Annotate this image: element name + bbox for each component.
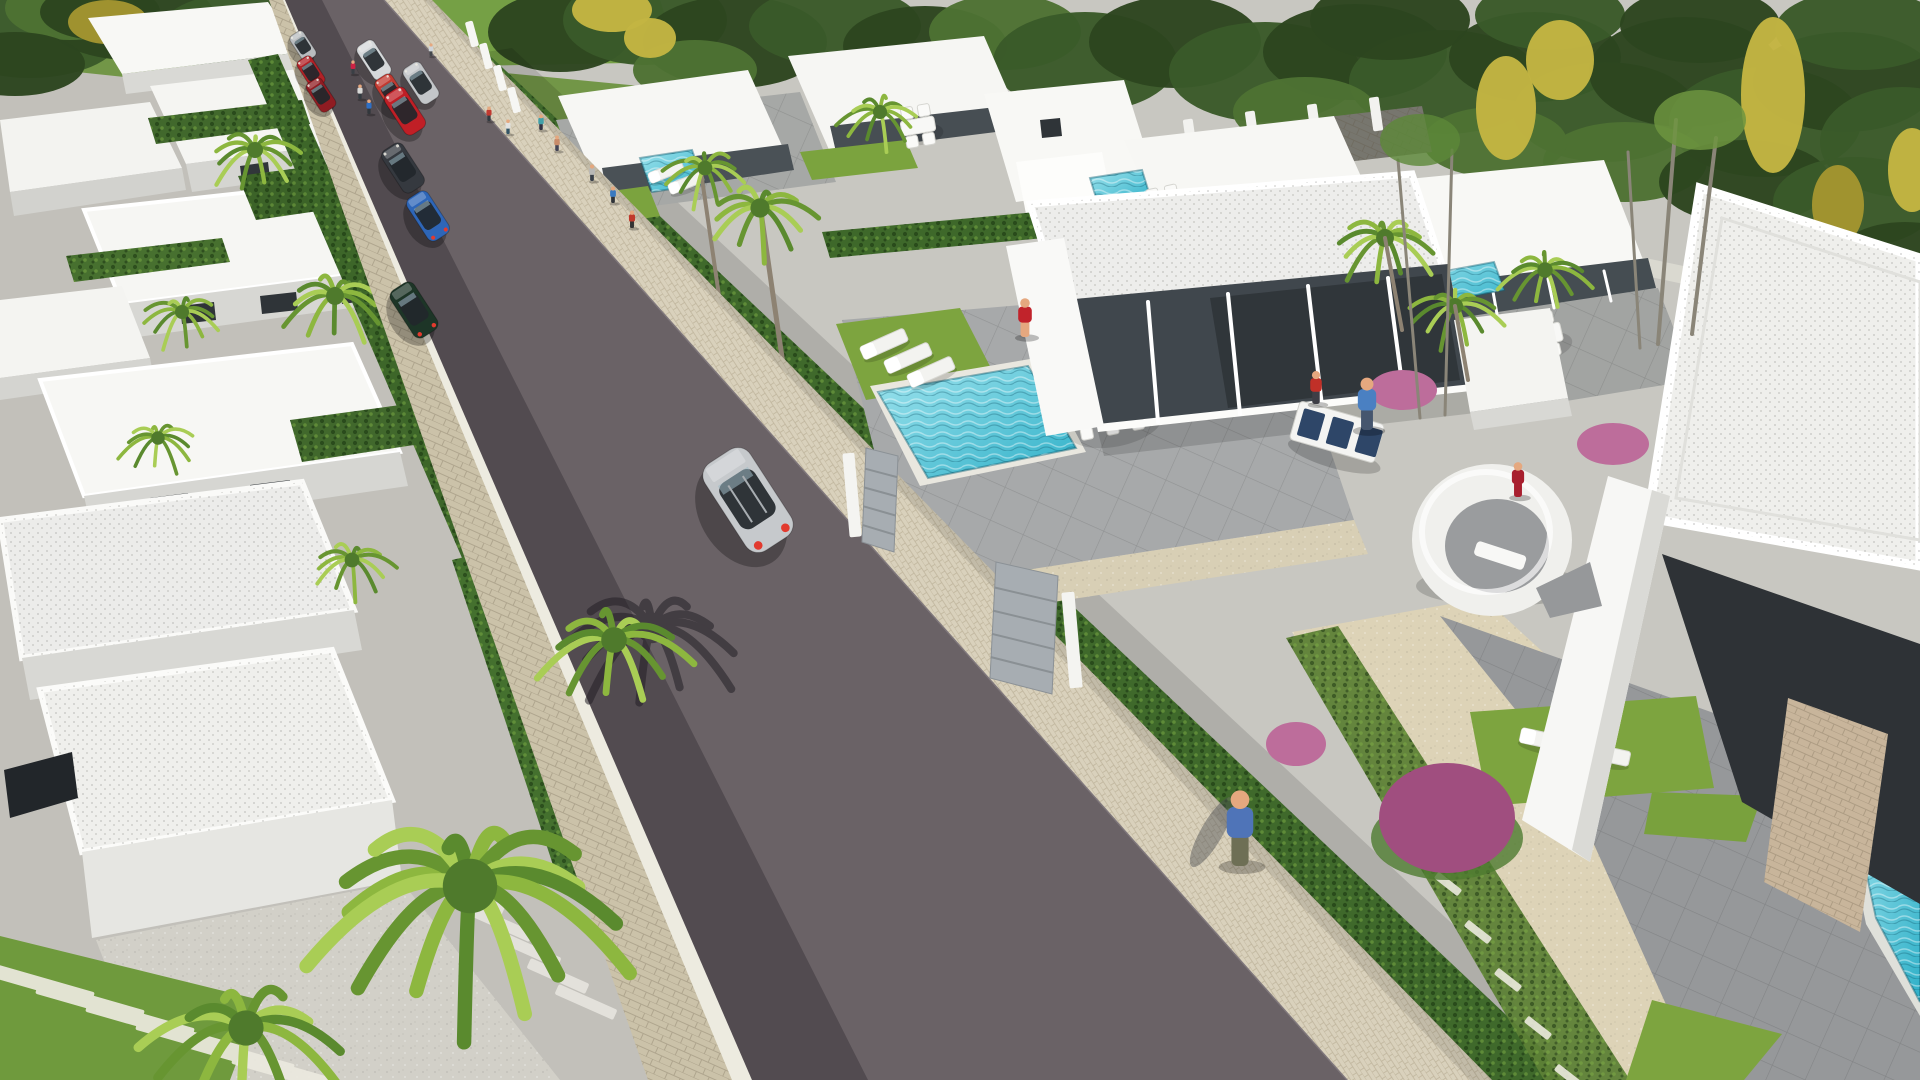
render-canvas (0, 0, 1920, 1080)
gate-panel (990, 562, 1058, 694)
shrub-pink (1369, 370, 1437, 410)
forest-tree (624, 18, 676, 58)
aerial-villa-render (0, 0, 1920, 1080)
shrub-bougainvillea (1379, 763, 1515, 873)
gate-panel (862, 448, 898, 552)
forest-tree (1526, 20, 1594, 100)
forest-tree (1741, 17, 1805, 173)
tree-top (1654, 90, 1746, 150)
forest-tree (1476, 56, 1536, 160)
tree-top (1380, 114, 1460, 166)
window (1040, 118, 1062, 138)
shrub-pink (1266, 722, 1326, 766)
annex (1454, 308, 1568, 412)
shrub-pink (1577, 423, 1649, 465)
